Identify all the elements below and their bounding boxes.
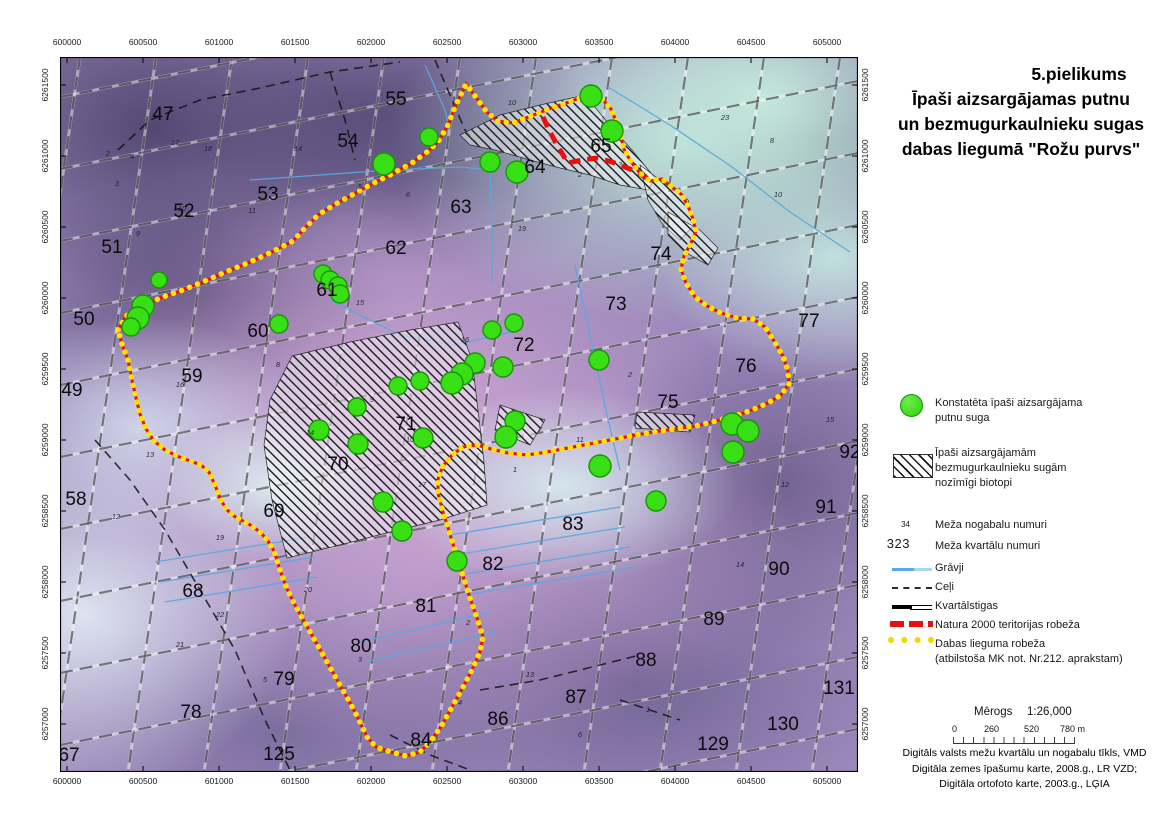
- subcompartment-number: 5: [263, 675, 268, 684]
- quarter-grid-line: [60, 513, 858, 673]
- ditch-line-icon: [892, 568, 932, 571]
- subcompartment-number: 3: [115, 179, 120, 188]
- title-line: un bezmugurkaulnieku sugas: [878, 112, 1164, 137]
- map-title: 5.pielikums Īpaši aizsargājamas putnu un…: [878, 62, 1164, 162]
- x-axis-label: 602500: [417, 37, 477, 47]
- quarter-number: 65: [590, 136, 611, 157]
- ditch-line: [450, 507, 620, 535]
- y-axis-label: 6257000: [40, 694, 52, 754]
- y-axis-label: 6260500: [40, 197, 52, 257]
- subcompartment-number: 12: [781, 480, 790, 489]
- quarter-number: 87: [565, 687, 586, 708]
- x-axis-label: 604500: [721, 776, 781, 786]
- x-axis-label: 603500: [569, 776, 629, 786]
- scale-tick: 260: [984, 724, 999, 734]
- y-axis-label: 6261500: [40, 55, 52, 115]
- quarter-number: 53: [257, 184, 278, 205]
- y-axis-label: 6257500: [40, 623, 52, 683]
- subcompartment-number: 6: [406, 190, 411, 199]
- quarter-number: 71: [395, 414, 416, 435]
- y-axis-label: 6260000: [860, 268, 872, 328]
- subcompartment-number: 19: [518, 224, 527, 233]
- scale-tick: 0: [952, 724, 957, 734]
- quarter-number: 52: [173, 201, 194, 222]
- quarter-number: 54: [337, 131, 359, 152]
- subcompartment-number: 13: [526, 670, 535, 679]
- legend-label-subnumbers: Meža nogabalu numuri: [935, 518, 1047, 533]
- subcompartment-number: 4: [130, 152, 134, 161]
- y-axis-label: 6260500: [860, 197, 872, 257]
- legend-label-ditches: Grāvji: [935, 561, 964, 576]
- subcompartment-number: 2: [105, 149, 111, 158]
- x-axis-label: 603000: [493, 37, 553, 47]
- subcompartment-number: 8: [770, 136, 775, 145]
- subcompartment-number: 14: [736, 560, 744, 569]
- quarter-number: 86: [487, 709, 508, 730]
- subcompartment-number: 12: [112, 512, 121, 521]
- quarter-number: 129: [697, 734, 729, 755]
- subcompartment-number: 17: [418, 480, 427, 489]
- quarter-number: 81: [415, 596, 436, 617]
- bird-site-dot: [392, 521, 412, 541]
- bird-site-dot: [483, 321, 501, 339]
- bird-site-dot: [270, 315, 288, 333]
- data-sources: Digitāls valsts mežu kvartālu un nogabal…: [880, 746, 1169, 793]
- y-axis-label: 6261000: [40, 126, 52, 186]
- road-line-icon: [892, 587, 932, 589]
- subcompartment-number: 10: [508, 98, 517, 107]
- scale-tick: 780 m: [1060, 724, 1085, 734]
- page: 1718243141011956192310238101213161516141…: [0, 0, 1169, 827]
- y-axis-label: 6261000: [860, 126, 872, 186]
- bird-site-dot: [737, 420, 759, 442]
- quarter-number: 63: [450, 197, 471, 218]
- x-axis-label: 604000: [645, 37, 705, 47]
- quarter-number: 61: [316, 280, 337, 301]
- y-axis-label: 6260000: [40, 268, 52, 328]
- bird-site-dot: [348, 398, 366, 416]
- quarter-line-icon: [892, 605, 932, 610]
- bird-site-dot: [493, 357, 513, 377]
- subcompartment-number: 19: [216, 533, 225, 542]
- quarter-number: 51: [101, 237, 122, 258]
- quarter-number: 75: [657, 392, 678, 413]
- legend-label-bird: Konstatēta īpaši aizsargājama putnu suga: [935, 396, 1082, 426]
- ditch-line: [160, 557, 315, 582]
- legend-label-quarterlines: Kvartālstigas: [935, 599, 998, 614]
- bird-site-dot: [441, 372, 463, 394]
- quarter-number: 130: [767, 714, 799, 735]
- y-axis-label: 6259500: [860, 339, 872, 399]
- quarter-number: 78: [180, 702, 201, 723]
- bird-site-dot: [646, 491, 666, 511]
- legend-label-roads: Ceļi: [935, 580, 954, 595]
- subcompartment-number: 16: [461, 335, 470, 344]
- y-axis-label: 6259500: [40, 339, 52, 399]
- subcompartment-number: 6: [578, 730, 583, 739]
- source-line: Digitāls valsts mežu kvartālu un nogabal…: [880, 746, 1169, 762]
- ditch-line: [425, 65, 450, 130]
- subcompartment-number: 14: [294, 144, 302, 153]
- quarter-number: 84: [410, 730, 432, 751]
- subcompartment-number: 2: [577, 170, 583, 179]
- quarter-number: 58: [65, 489, 86, 510]
- quarter-number: 64: [524, 157, 546, 178]
- biotope-area: [460, 95, 655, 190]
- scale-ratio: 1:26,000: [1027, 706, 1072, 718]
- title-line: dabas liegumā "Rožu purvs": [878, 137, 1164, 162]
- quarter-number: 74: [650, 244, 672, 265]
- legend-label-quarters: Meža kvartālu numuri: [935, 539, 1040, 554]
- x-axis-label: 600500: [113, 776, 173, 786]
- map-svg: 1718243141011956192310238101213161516141…: [60, 57, 858, 772]
- quarter-number: 77: [798, 311, 819, 332]
- bird-site-dot: [373, 153, 395, 175]
- quarter-number: 131: [823, 678, 855, 699]
- quarter-number: 70: [327, 454, 348, 475]
- quarter-number: 59: [181, 366, 202, 387]
- quarter-number: 80: [350, 636, 371, 657]
- quarter-number: 91: [815, 497, 836, 518]
- bird-site-dot: [122, 318, 140, 336]
- x-axis-label: 604500: [721, 37, 781, 47]
- quarter-number: 68: [182, 581, 203, 602]
- bird-site-dot: [389, 377, 407, 395]
- subcompartment-number: 20: [303, 585, 313, 594]
- x-axis-label: 602000: [341, 37, 401, 47]
- y-axis-label: 6258000: [40, 552, 52, 612]
- annex-number: 5.pielikums: [878, 62, 1164, 87]
- legend-label-biotope: Īpaši aizsargājamām bezmugurkaulnieku su…: [935, 446, 1066, 491]
- y-axis-label: 6257000: [860, 694, 872, 754]
- y-axis-label: 6258000: [860, 552, 872, 612]
- subcompartment-number: 18: [204, 144, 213, 153]
- subcompartment-number: 8: [276, 360, 281, 369]
- subcompartment-number: 9: [136, 229, 141, 238]
- scale-tick: 520: [1024, 724, 1039, 734]
- quarter-number: 67: [60, 745, 80, 766]
- subcompartment-number: 13: [146, 450, 155, 459]
- y-axis-label: 6258500: [40, 481, 52, 541]
- y-axis-label: 6257500: [860, 623, 872, 683]
- subcompartment-number: 11: [576, 435, 584, 444]
- legend-label-boundary: Dabas lieguma robeža (atbilstoša MK not.…: [935, 637, 1123, 667]
- x-axis-label: 601000: [189, 776, 249, 786]
- x-axis-label: 600500: [113, 37, 173, 47]
- y-axis-label: 6261500: [860, 55, 872, 115]
- subcompartment-number: 10: [406, 435, 415, 444]
- quarter-number: 73: [605, 294, 626, 315]
- quarter-number: 92: [839, 442, 858, 463]
- bird-site-dot: [151, 272, 167, 288]
- subcompartment-number: 17: [171, 138, 180, 147]
- subcompartment-number: 21: [175, 640, 184, 649]
- source-line: Digitāla ortofoto karte, 2003.g., LĢIA: [880, 777, 1169, 793]
- x-axis-label: 601500: [265, 37, 325, 47]
- bird-site-dot: [348, 434, 368, 454]
- bird-site-dot: [373, 492, 393, 512]
- subcompartment-number: 23: [720, 113, 730, 122]
- bird-site-dot: [589, 455, 611, 477]
- reserve-boundary-icon: [888, 637, 934, 643]
- quarter-number: 76: [735, 356, 756, 377]
- x-axis-label: 600000: [37, 776, 97, 786]
- bird-site-dot: [505, 314, 523, 332]
- subcompartment-number: 2: [627, 370, 633, 379]
- bird-site-icon: [900, 394, 923, 417]
- quarter-number: 90: [768, 559, 789, 580]
- title-line: Īpaši aizsargājamas putnu: [878, 87, 1164, 112]
- x-axis-label: 602000: [341, 776, 401, 786]
- quarter-number: 60: [247, 321, 268, 342]
- quarter-number: 82: [482, 554, 503, 575]
- bird-site-dot: [411, 372, 429, 390]
- quarter-number: 83: [562, 514, 583, 535]
- source-line: Digitāla zemes īpašumu karte, 2008.g., L…: [880, 762, 1169, 778]
- quarter-number: 69: [263, 501, 284, 522]
- quarter-number: 88: [635, 650, 656, 671]
- x-axis-label: 605000: [797, 776, 857, 786]
- y-axis-label: 6258500: [860, 481, 872, 541]
- quarter-number: 50: [73, 309, 94, 330]
- x-axis-label: 602500: [417, 776, 477, 786]
- subcompartment-number: 15: [356, 298, 365, 307]
- subcompartment-number: 22: [215, 610, 225, 619]
- x-axis-label: 605000: [797, 37, 857, 47]
- subcompartment-number: 4: [458, 698, 462, 707]
- bird-site-dot: [580, 85, 602, 107]
- scale-label: Mērogs: [974, 706, 1012, 718]
- x-axis-label: 601500: [265, 776, 325, 786]
- bird-site-dot: [589, 350, 609, 370]
- bird-site-dot: [722, 441, 744, 463]
- quarter-number: 49: [61, 380, 82, 401]
- subcompartment-number: 14: [306, 428, 314, 437]
- scale-bar: [953, 737, 1075, 744]
- bird-site-dot: [480, 152, 500, 172]
- x-axis-label: 601000: [189, 37, 249, 47]
- quarter-number: 79: [273, 669, 294, 690]
- y-axis-label: 6259000: [40, 410, 52, 470]
- quarter-number: 89: [703, 609, 724, 630]
- subnumber-sample: 34: [884, 520, 910, 529]
- x-axis-label: 600000: [37, 37, 97, 47]
- quarter-number: 125: [263, 744, 295, 765]
- bird-site-dot: [420, 128, 438, 146]
- x-axis-label: 603000: [493, 776, 553, 786]
- x-axis-label: 603500: [569, 37, 629, 47]
- legend-label-natura: Natura 2000 teritorijas robeža: [935, 618, 1080, 633]
- quarter-number: 47: [152, 104, 173, 125]
- quarter-number: 62: [385, 238, 406, 259]
- quarter-number-sample: 323: [884, 536, 910, 551]
- subcompartment-number: 1: [646, 705, 650, 714]
- subcompartment-number: 15: [826, 415, 835, 424]
- x-axis-label: 604000: [645, 776, 705, 786]
- subcompartment-number: 11: [248, 206, 256, 215]
- map-area: 1718243141011956192310238101213161516141…: [60, 57, 858, 772]
- natura2000-line-icon: [890, 621, 933, 627]
- subcompartment-number: 2: [465, 618, 471, 627]
- road-line: [480, 655, 640, 690]
- bird-site-dot: [447, 551, 467, 571]
- biotope-hatch-icon: [893, 454, 933, 478]
- bird-site-dot: [495, 426, 517, 448]
- subcompartment-number: 10: [774, 190, 783, 199]
- subcompartment-number: 1: [513, 465, 517, 474]
- quarter-number: 72: [513, 335, 534, 356]
- y-axis-label: 6259000: [860, 410, 872, 470]
- quarter-number: 55: [385, 89, 406, 110]
